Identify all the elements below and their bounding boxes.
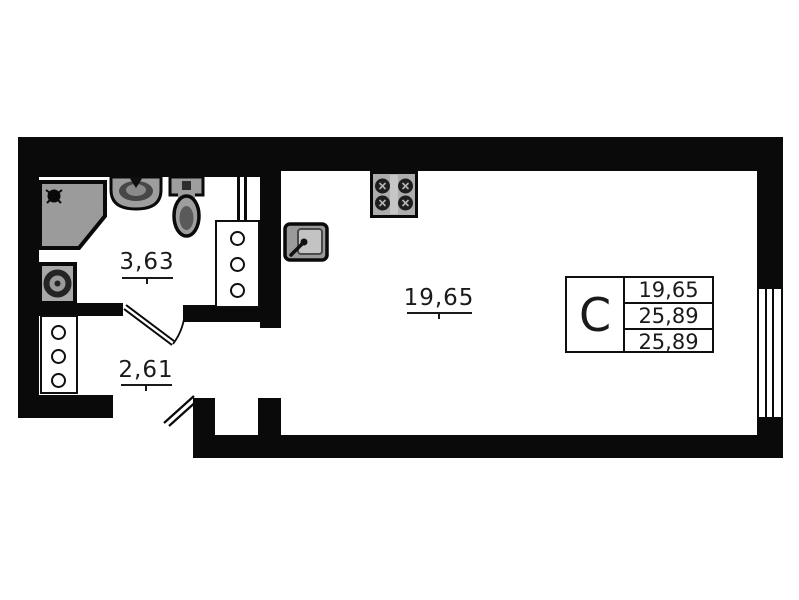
stove-symbol — [370, 171, 418, 218]
toilet-symbol — [168, 175, 205, 238]
hallway-area-label: 2,61 — [101, 358, 191, 382]
window — [757, 289, 783, 417]
divider-wall — [260, 171, 281, 328]
washing-machine-symbol — [38, 262, 77, 305]
bathroom-area-label: 3,63 — [102, 250, 192, 274]
duct-partition-line — [237, 171, 240, 221]
unit-legend-table: C 19,65 25,89 25,89 — [565, 276, 714, 353]
riser-circle — [51, 373, 66, 388]
riser-circle — [230, 283, 245, 298]
outer-wall-right-upper — [757, 171, 783, 289]
entrance-niche-wall — [258, 398, 281, 435]
dimension-tick — [146, 278, 148, 284]
unit-type-cell: C — [567, 278, 625, 351]
outer-wall-right-lower — [757, 417, 783, 458]
dimension-tick — [438, 313, 440, 319]
window-pane-line — [765, 289, 767, 417]
unit-area-value: 19,65 — [625, 278, 712, 302]
unit-area-value: 25,89 — [625, 302, 712, 330]
outer-wall-left — [18, 137, 39, 418]
outer-wall-top — [260, 137, 783, 171]
entrance-door-swing — [158, 391, 206, 433]
outer-wall-bottom — [193, 435, 783, 458]
living-area-label: 19,65 — [394, 286, 484, 310]
unit-area-column: 19,65 25,89 25,89 — [625, 278, 712, 351]
riser-circle — [230, 257, 245, 272]
outer-wall-top-bathroom — [18, 137, 281, 177]
dimension-tick — [145, 385, 147, 391]
floor-plan: 3,63 2,61 19,65 C 19,65 25,89 25,89 — [0, 0, 799, 600]
duct-partition-line — [244, 171, 247, 221]
riser-circle — [51, 349, 66, 364]
shower-symbol — [38, 180, 107, 250]
kitchen-sink-symbol — [283, 222, 329, 262]
shower-head-icon — [46, 190, 62, 203]
riser-circle — [230, 231, 245, 246]
unit-area-value: 25,89 — [625, 330, 712, 354]
bathroom-sink-symbol — [109, 176, 163, 211]
bathroom-door-swing — [118, 301, 192, 355]
hallway-bottom-wall — [18, 395, 113, 418]
riser-circle — [51, 325, 66, 340]
window-pane-line — [772, 289, 774, 417]
